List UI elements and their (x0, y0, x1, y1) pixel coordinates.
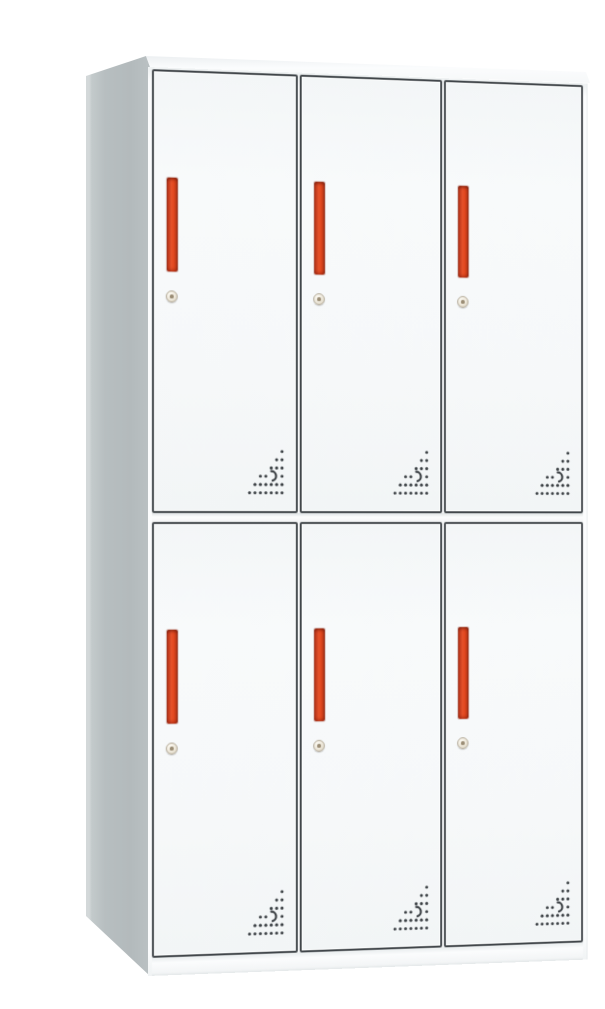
vent-holes-icon (246, 888, 285, 941)
row-divider (152, 513, 583, 522)
door-handle (458, 186, 468, 278)
cabinet-front (148, 67, 588, 976)
cabinet-side-panel (86, 50, 150, 982)
locker-cabinet (86, 50, 594, 982)
vent-holes-icon (392, 448, 430, 499)
locker-door-bottom-right (444, 522, 583, 947)
door-handle (167, 178, 178, 272)
door-lock-keyhole (313, 740, 325, 752)
door-lock-keyhole (457, 296, 468, 308)
locker-row-bottom (152, 522, 583, 958)
product-photo: White metal storage locker with six door… (40, 16, 565, 993)
locker-door-bottom-middle (300, 522, 442, 953)
door-handle (314, 628, 325, 721)
door-handle (314, 182, 325, 275)
locker-door-top-left (152, 69, 298, 513)
door-handle (167, 630, 178, 724)
vent-holes-icon (246, 448, 285, 500)
vent-holes-icon (392, 883, 430, 935)
locker-door-top-right (444, 80, 583, 513)
vent-holes-icon (534, 449, 571, 499)
locker-row-top (152, 69, 583, 513)
door-lock-keyhole (166, 290, 178, 302)
vent-holes-icon (534, 879, 571, 930)
door-handle (458, 627, 468, 719)
door-lock-keyhole (166, 742, 178, 754)
locker-door-bottom-left (152, 522, 298, 958)
door-lock-keyhole (457, 737, 468, 749)
door-lock-keyhole (313, 293, 325, 305)
locker-door-top-middle (300, 75, 442, 514)
